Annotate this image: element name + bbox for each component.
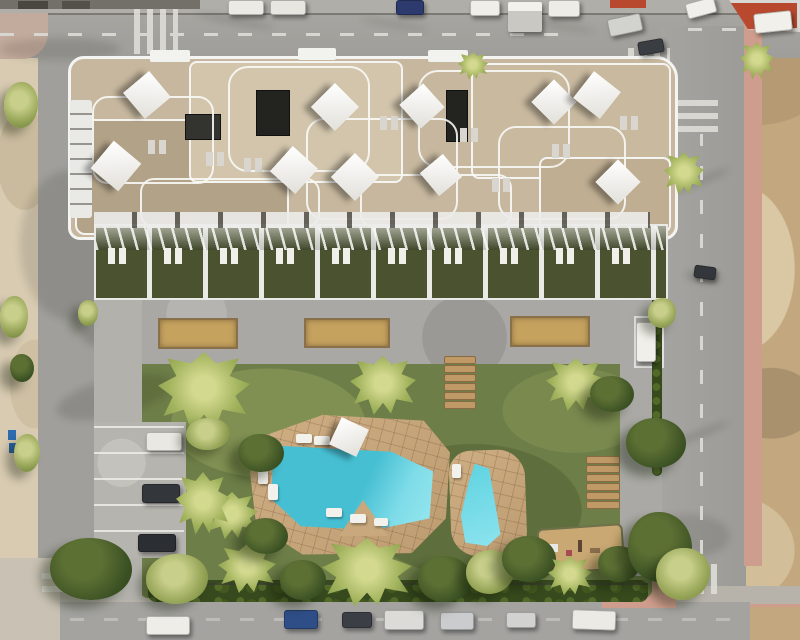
crosswalk-top bbox=[134, 4, 178, 54]
tree bbox=[238, 434, 284, 472]
petanque-pit bbox=[158, 318, 238, 349]
wood-step bbox=[444, 365, 476, 373]
tree bbox=[418, 556, 472, 602]
sun-lounger-wood bbox=[586, 501, 620, 509]
play-equipment bbox=[566, 550, 572, 556]
sun-lounger-wood bbox=[586, 492, 620, 500]
roof-loungers bbox=[620, 116, 638, 130]
right-road-sidewalk-east bbox=[744, 0, 762, 566]
roof-loungers bbox=[380, 116, 398, 130]
red-paver-strip bbox=[610, 0, 646, 8]
parked-van-white bbox=[146, 616, 190, 635]
lane-line bbox=[700, 134, 703, 554]
tree bbox=[626, 418, 686, 468]
sun-lounger-wood bbox=[586, 456, 620, 464]
parked-car-dark bbox=[142, 484, 180, 503]
pool-lounger bbox=[326, 508, 342, 517]
wood-step bbox=[444, 392, 476, 400]
roof-loungers bbox=[206, 152, 224, 166]
wood-step bbox=[444, 383, 476, 391]
petanque-pit bbox=[510, 316, 590, 347]
roof-loungers bbox=[148, 140, 166, 154]
car-roof bbox=[18, 1, 48, 9]
parked-car-white bbox=[636, 322, 656, 362]
beach-shrub bbox=[10, 354, 34, 382]
wood-step bbox=[444, 401, 476, 409]
terrace-loungers bbox=[556, 248, 574, 264]
terrace-loungers bbox=[108, 248, 126, 264]
terrace-loungers bbox=[220, 248, 238, 264]
play-equipment bbox=[578, 540, 582, 552]
parked-van bbox=[548, 0, 580, 17]
roof-bulkhead bbox=[150, 50, 190, 62]
roof-loungers bbox=[552, 144, 570, 158]
wood-step bbox=[444, 356, 476, 364]
parked-car-blue bbox=[284, 610, 318, 629]
parked-van bbox=[753, 10, 793, 34]
sun-lounger-wood bbox=[586, 474, 620, 482]
parked-car-dark bbox=[342, 612, 372, 628]
tree bbox=[280, 560, 326, 600]
terrace-loungers bbox=[444, 248, 462, 264]
pool-lounger bbox=[350, 514, 366, 523]
pool-lounger bbox=[296, 434, 312, 443]
parked-car-silver bbox=[440, 612, 474, 630]
roof-loungers bbox=[492, 178, 510, 192]
terrace-loungers bbox=[500, 248, 518, 264]
parked-van bbox=[270, 0, 306, 15]
facade-strip bbox=[94, 212, 650, 228]
tree bbox=[590, 376, 634, 412]
roof-loungers bbox=[460, 128, 478, 142]
roof-bulkhead bbox=[298, 48, 336, 60]
parked-car-silver bbox=[506, 612, 536, 628]
parked-car-white bbox=[146, 432, 182, 451]
play-equipment bbox=[590, 548, 600, 553]
wood-step bbox=[444, 374, 476, 382]
terrace-loungers bbox=[276, 248, 294, 264]
petanque-pit bbox=[304, 318, 390, 348]
terrace-loungers bbox=[612, 248, 630, 264]
pool-lounger bbox=[314, 436, 330, 445]
parked-van bbox=[228, 0, 264, 15]
pickup-truck bbox=[572, 609, 617, 631]
recycle-bin bbox=[8, 430, 16, 440]
balcony-strip bbox=[70, 100, 92, 218]
parked-car-dark bbox=[138, 534, 176, 552]
sun-lounger-wood bbox=[586, 483, 620, 491]
lane-line bbox=[0, 33, 570, 36]
pool-lounger bbox=[374, 518, 388, 526]
parked-van-white bbox=[384, 610, 424, 630]
car-roof bbox=[62, 1, 90, 9]
pool-lounger bbox=[452, 464, 461, 478]
box-truck bbox=[508, 2, 542, 32]
aerial-scene bbox=[0, 0, 800, 640]
tree bbox=[502, 536, 556, 582]
terrace-loungers bbox=[332, 248, 350, 264]
parked-van bbox=[470, 0, 500, 16]
pool-lounger bbox=[268, 484, 278, 500]
tree bbox=[50, 538, 132, 600]
parked-van-blue bbox=[396, 0, 424, 15]
tree bbox=[244, 518, 288, 554]
roof-loungers bbox=[244, 158, 262, 172]
terrace-loungers bbox=[388, 248, 406, 264]
terrace-loungers bbox=[164, 248, 182, 264]
sun-lounger-wood bbox=[586, 465, 620, 473]
